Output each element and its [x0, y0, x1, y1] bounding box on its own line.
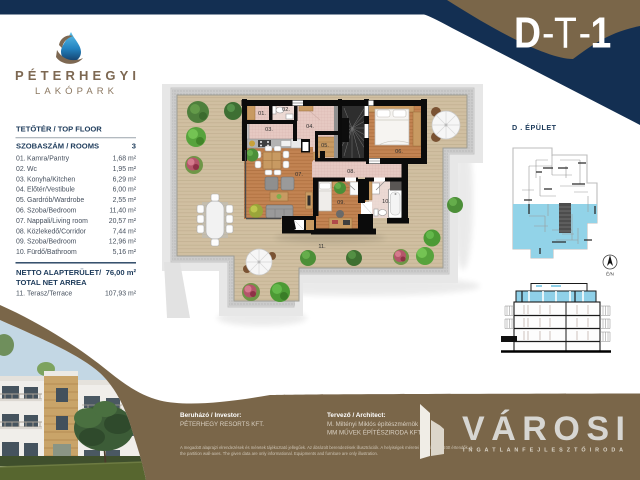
svg-text:01.: 01.	[16, 156, 26, 163]
svg-text:TOTAL NET ARREA: TOTAL NET ARREA	[16, 278, 87, 287]
svg-text:10.: 10.	[16, 249, 26, 256]
svg-text:M. Miltényi Miklós építészmérn: M. Miltényi Miklós építészmérnök	[327, 421, 419, 428]
svg-text:TETŐTÉR / TOP FLOOR: TETŐTÉR / TOP FLOOR	[16, 125, 102, 134]
svg-text:04.: 04.	[16, 187, 26, 194]
svg-text:08.: 08.	[16, 228, 26, 235]
svg-text:12,96 m²: 12,96 m²	[109, 239, 137, 246]
svg-text:07.: 07.	[295, 172, 303, 178]
svg-text:Kamra/Pantry: Kamra/Pantry	[27, 156, 70, 163]
svg-text:Konyha/Kitchen: Konyha/Kitchen	[27, 176, 75, 183]
svg-text:D . ÉPÜLET: D . ÉPÜLET	[512, 123, 557, 132]
svg-text:MM MŰVEK ÉPÍTÉSZIRODA KFT.: MM MŰVEK ÉPÍTÉSZIRODA KFT.	[327, 430, 423, 437]
svg-text:Gardrób/Wardrobe: Gardrób/Wardrobe	[27, 197, 84, 204]
svg-text:06.: 06.	[16, 208, 26, 215]
svg-text:5,16 m²: 5,16 m²	[113, 249, 137, 256]
svg-text:09.: 09.	[337, 200, 345, 206]
svg-text:7,44 m²: 7,44 m²	[113, 228, 137, 235]
svg-text:08.: 08.	[347, 169, 355, 175]
svg-text:Terasz/Terrace: Terasz/Terrace	[27, 290, 72, 297]
svg-text:Tervező / Architect:: Tervező / Architect:	[327, 412, 386, 419]
svg-text:1,95 m²: 1,95 m²	[113, 166, 137, 173]
svg-text:NETTO ALAPTERÜLET/: NETTO ALAPTERÜLET/	[16, 268, 102, 277]
svg-text:É/N: É/N	[606, 271, 614, 277]
svg-text:Fürdő/Bathroom: Fürdő/Bathroom	[27, 249, 77, 256]
svg-text:20,57 m²: 20,57 m²	[109, 218, 137, 225]
svg-text:6,00 m²: 6,00 m²	[113, 187, 137, 194]
svg-text:04.: 04.	[306, 124, 314, 130]
svg-text:107,93 m²: 107,93 m²	[105, 290, 137, 297]
svg-text:Wc: Wc	[27, 166, 38, 173]
svg-text:PÉTERHEGY RESORTS KFT.: PÉTERHEGY RESORTS KFT.	[180, 421, 264, 428]
svg-text:09.: 09.	[16, 239, 26, 246]
svg-text:Nappali/Living room: Nappali/Living room	[27, 218, 88, 225]
svg-text:6,29 m²: 6,29 m²	[113, 176, 137, 183]
svg-text:-: -	[579, 8, 591, 58]
svg-text:D: D	[514, 8, 541, 58]
svg-text:10.: 10.	[382, 199, 390, 205]
svg-text:05.: 05.	[321, 143, 329, 149]
svg-text:11,40 m²: 11,40 m²	[109, 208, 136, 215]
svg-text:03.: 03.	[265, 127, 273, 133]
svg-text:Beruházó / Investor:: Beruházó / Investor:	[180, 412, 241, 419]
svg-text:T: T	[554, 8, 577, 58]
svg-text:SZOBASZÁM / ROOMS: SZOBASZÁM / ROOMS	[16, 142, 99, 151]
svg-text:-: -	[542, 8, 554, 58]
svg-text:Szoba/Bedroom: Szoba/Bedroom	[27, 239, 77, 246]
svg-text:07.: 07.	[16, 218, 26, 225]
svg-text:Közlekedő/Corridor: Közlekedő/Corridor	[27, 228, 87, 235]
svg-text:02.: 02.	[16, 166, 26, 173]
svg-text:06.: 06.	[395, 149, 403, 155]
svg-text:2,55 m²: 2,55 m²	[113, 197, 137, 204]
svg-text:3: 3	[132, 142, 136, 151]
svg-text:02.: 02.	[282, 107, 290, 113]
svg-text:76,00 m²: 76,00 m²	[106, 268, 137, 277]
svg-text:05.: 05.	[16, 197, 26, 204]
svg-text:1,68 m²: 1,68 m²	[113, 156, 137, 163]
svg-text:01.: 01.	[258, 111, 266, 117]
svg-text:03.: 03.	[16, 176, 26, 183]
svg-text:Szoba/Bedroom: Szoba/Bedroom	[27, 208, 77, 215]
svg-text:11.: 11.	[318, 244, 326, 250]
svg-text:the partition wall-axes. The g: the partition wall-axes. The given data …	[180, 451, 378, 456]
svg-text:11.: 11.	[16, 290, 25, 297]
svg-text:Előtér/Vestibule: Előtér/Vestibule	[27, 187, 75, 194]
svg-text:1: 1	[591, 8, 612, 58]
